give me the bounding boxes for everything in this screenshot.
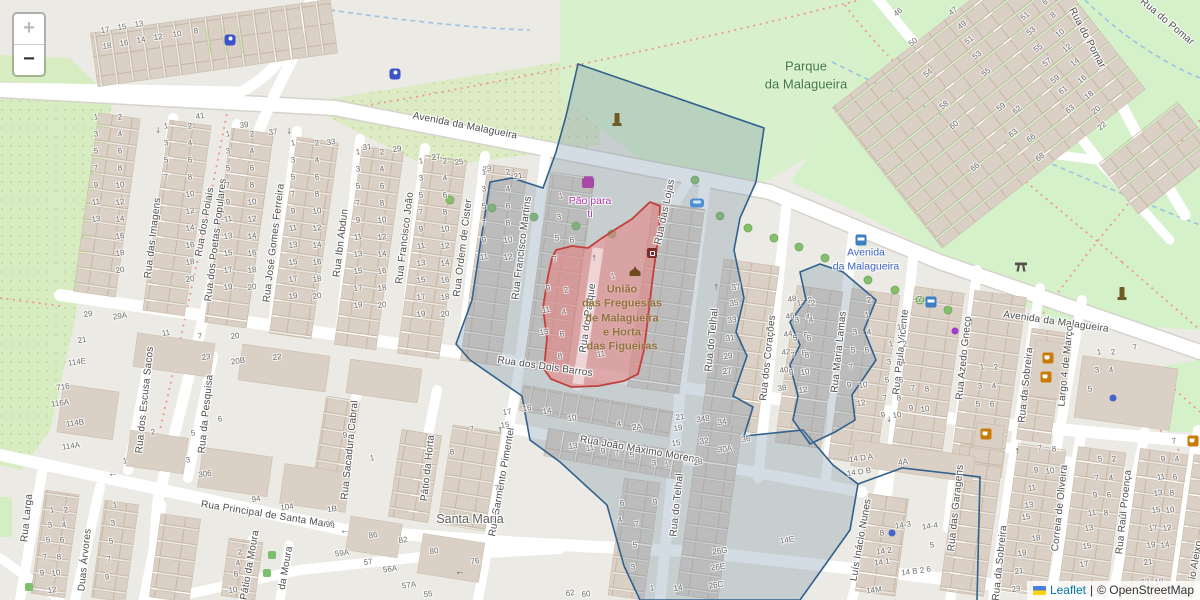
ukraine-flag-icon	[1033, 586, 1046, 595]
zoom-in-button[interactable]: +	[14, 14, 44, 45]
openstreetmap-link[interactable]: © OpenStreetMap	[1097, 583, 1194, 597]
leaflet-link[interactable]: Leaflet	[1050, 583, 1086, 597]
attribution-separator: |	[1090, 583, 1093, 597]
zoom-out-button[interactable]: −	[14, 45, 44, 75]
map-canvas[interactable]: Avenida da MalagueiraAvenida da Malaguei…	[0, 0, 1200, 600]
attribution-bar: Leaflet | © OpenStreetMap	[1027, 581, 1200, 600]
zoom-control: + −	[12, 12, 46, 77]
map-graphics	[0, 0, 1200, 600]
